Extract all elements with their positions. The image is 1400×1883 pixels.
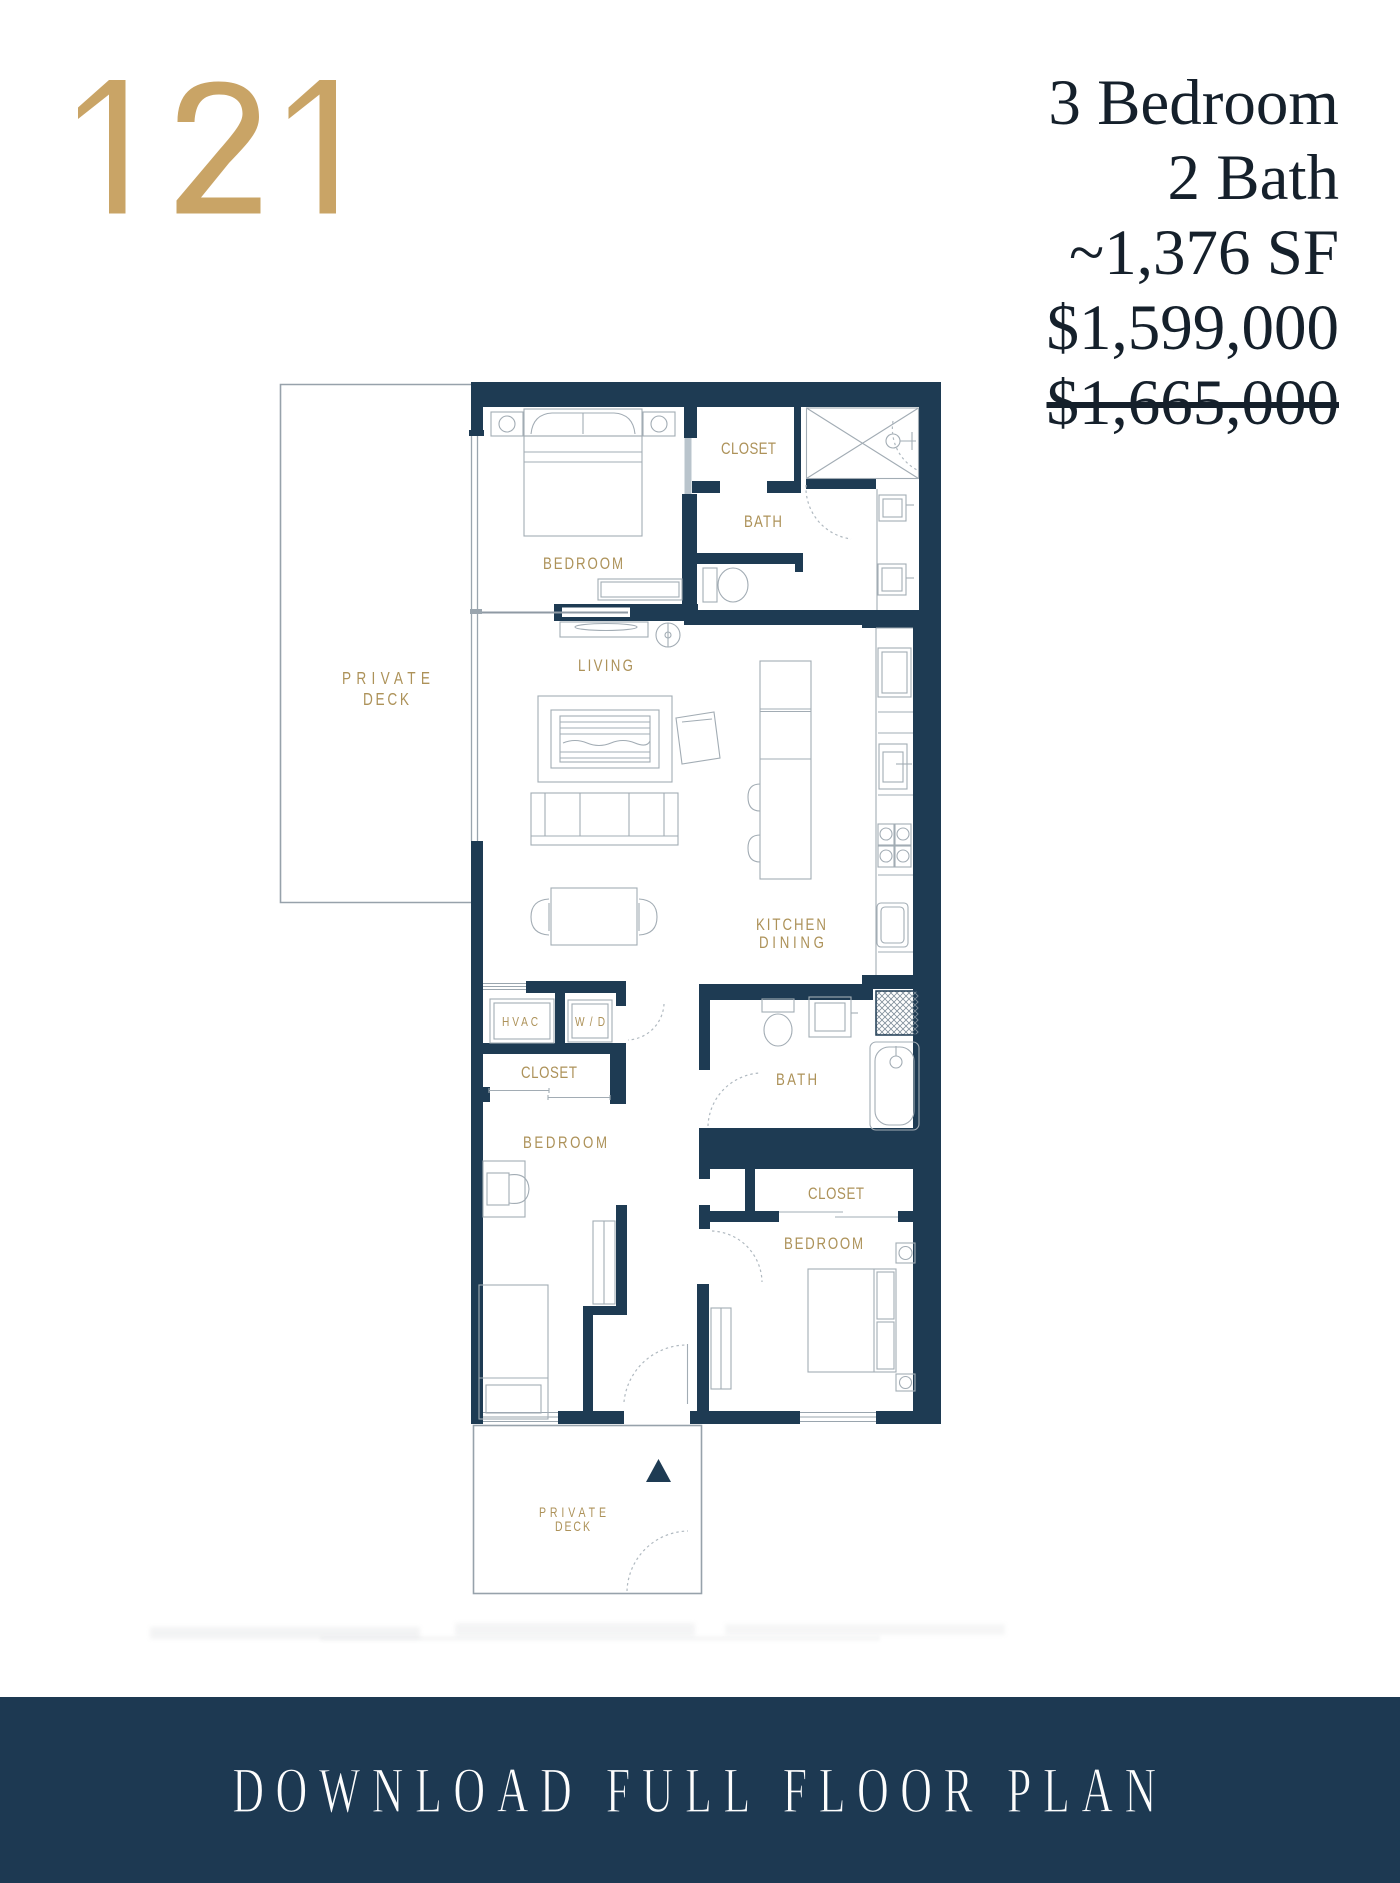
svg-text:CLOSET: CLOSET (521, 1064, 577, 1083)
svg-text:PRIVATE: PRIVATE (539, 1505, 606, 1521)
svg-text:BEDROOM: BEDROOM (543, 555, 623, 574)
svg-text:PRIVATE: PRIVATE (342, 670, 430, 689)
svg-text:KITCHEN: KITCHEN (756, 916, 826, 935)
svg-text:BEDROOM: BEDROOM (784, 1235, 863, 1254)
svg-text:BATH: BATH (744, 513, 782, 532)
svg-text:BATH: BATH (776, 1071, 817, 1090)
svg-text:DECK: DECK (363, 691, 409, 710)
svg-text:DINING: DINING (759, 934, 824, 953)
svg-text:LIVING: LIVING (578, 657, 633, 676)
svg-text:W/D: W/D (575, 1015, 605, 1029)
svg-text:CLOSET: CLOSET (808, 1185, 864, 1204)
svg-text:HVAC: HVAC (502, 1015, 538, 1029)
svg-text:CLOSET: CLOSET (721, 440, 776, 459)
svg-text:BEDROOM: BEDROOM (523, 1134, 607, 1153)
svg-text:DECK: DECK (555, 1519, 590, 1535)
